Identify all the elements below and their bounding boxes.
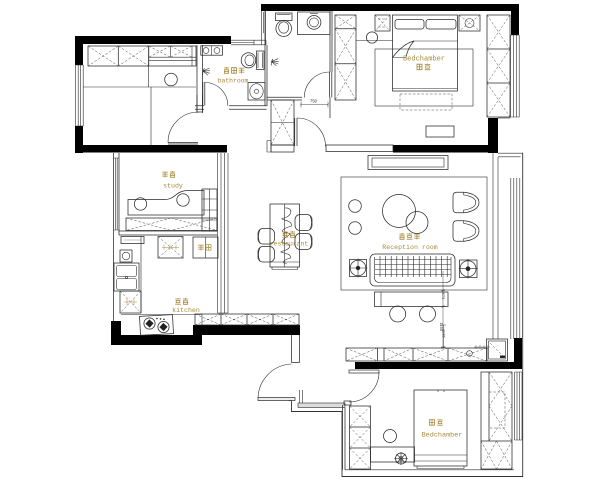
svg-text:Bedchamber: Bedchamber — [403, 56, 445, 64]
svg-text:573: 573 — [441, 293, 446, 300]
svg-text:kitchen: kitchen — [172, 307, 200, 314]
svg-text:1135: 1135 — [442, 329, 447, 338]
svg-text:Reception room: Reception room — [382, 244, 437, 251]
svg-text:restaurant: restaurant — [270, 241, 309, 248]
svg-text:study: study — [163, 183, 183, 190]
svg-text:Bedchamber: Bedchamber — [422, 432, 463, 440]
svg-text:750: 750 — [310, 99, 318, 104]
svg-text:bathroom: bathroom — [218, 78, 249, 85]
